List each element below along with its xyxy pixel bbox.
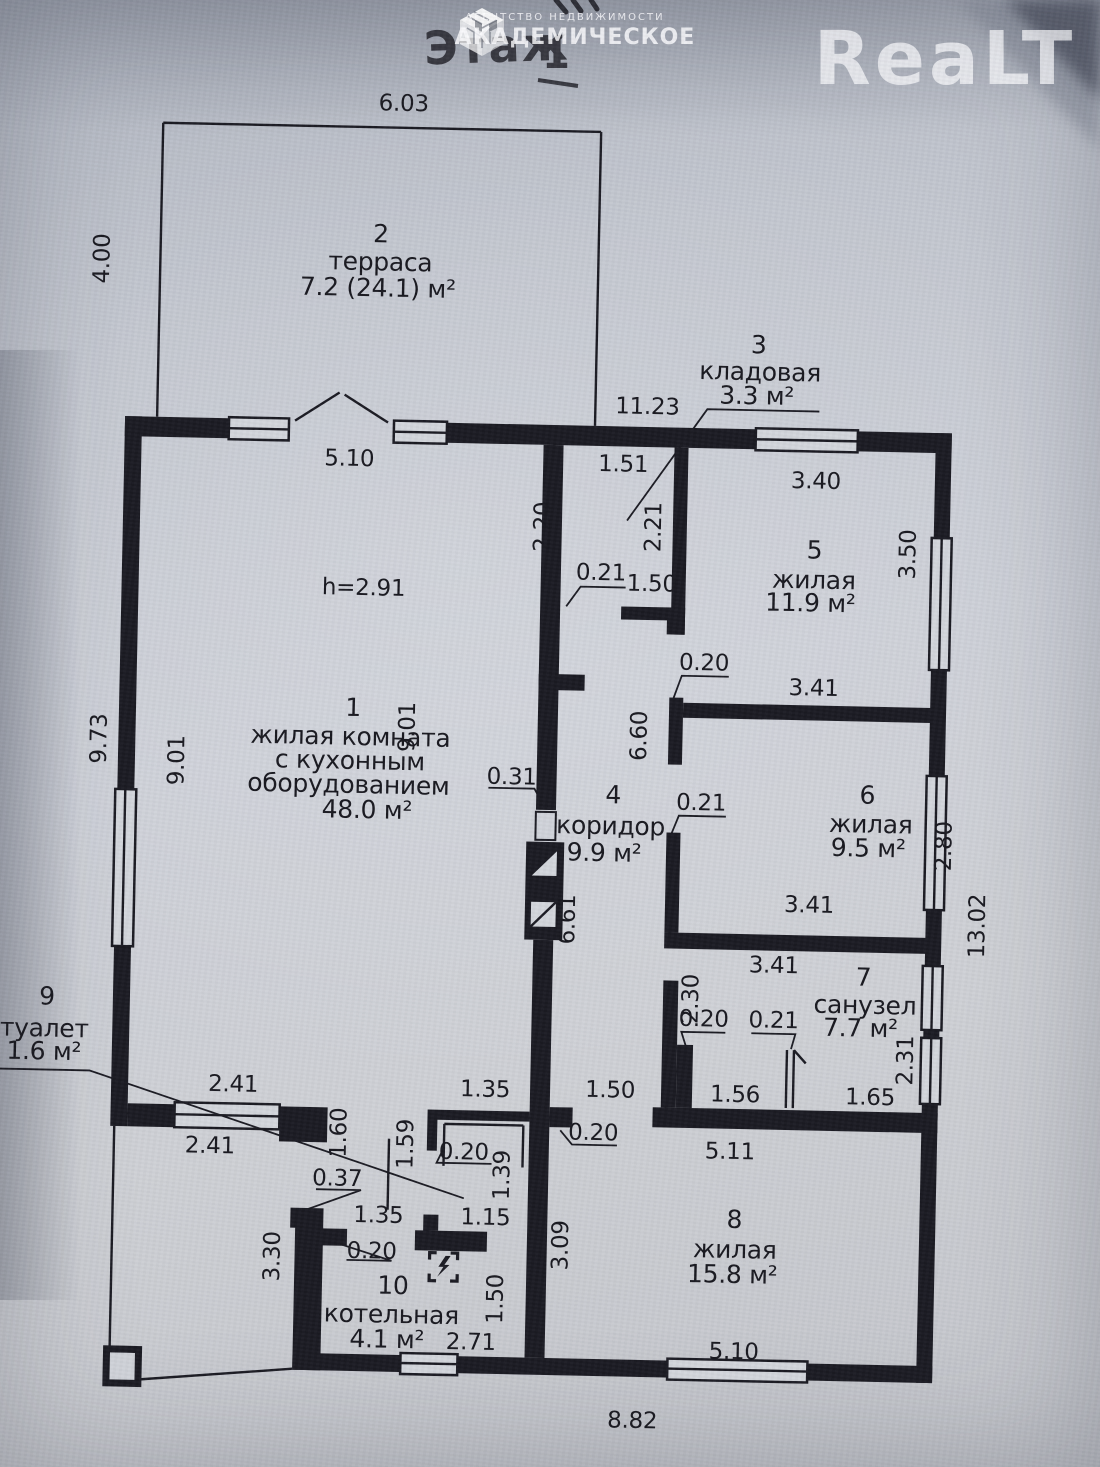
dim-wc-bottom: 2.41 [185, 1132, 236, 1159]
dim-boiler-height: 1.50 [482, 1274, 509, 1325]
agency-name: АКАДЕМИЧЕСКОЕ [455, 25, 696, 50]
dim-left-inner: 9.01 [163, 735, 190, 786]
entrance-door-leaves [295, 392, 389, 423]
dim-wc2-wall: 0.20 [438, 1139, 489, 1166]
window-toilet [174, 1102, 280, 1129]
room-label-pantry: 3 кладовая 3.3 м² [699, 329, 822, 412]
dim-pantry-width: 1.51 [598, 451, 649, 478]
room10-num: 10 [377, 1271, 409, 1301]
dim-pantry-height-left: 2.20 [529, 502, 556, 553]
porch-door-leaf [388, 1139, 389, 1210]
dim-terrace-depth: 4.00 [89, 233, 116, 284]
room8-area: 15.8 м² [687, 1259, 778, 1290]
window-right-bath-1 [921, 966, 942, 1030]
room-label-living8: 8 жилая 15.8 м² [687, 1204, 779, 1290]
room4-area: 9.9 м² [566, 837, 641, 868]
room9-num: 9 [39, 981, 55, 1010]
room10-area: 4.1 м² [349, 1324, 424, 1355]
room1-num: 1 [345, 693, 361, 722]
dim-terrace-width: 6.03 [378, 90, 429, 117]
room-label-bath: 7 санузел 7.7 м² [813, 962, 917, 1044]
room1-area: 48.0 м² [321, 794, 412, 825]
dim-wc-top: 2.41 [208, 1071, 259, 1098]
dim-wc2-left: 1.59 [392, 1119, 419, 1170]
dim-bath-niche1: 1.56 [710, 1081, 761, 1108]
dim-room6-width-bottom: 3.41 [784, 892, 835, 919]
dim-ceiling-height: h=2.91 [322, 574, 406, 602]
dim-bath-niche2: 1.65 [845, 1084, 896, 1111]
floor-plan-svg: Этаж 1 АГЕНТСТВО НЕДВИЖИМОСТИ АКАДЕМИЧЕС… [0, 0, 1100, 1467]
dim-boiler-wall: 0.20 [346, 1238, 397, 1265]
electric-panel-symbol [429, 1253, 458, 1282]
window-top-3 [756, 428, 858, 452]
dim-room8-height: 3.09 [547, 1220, 574, 1271]
room-label-living5: 5 жилая 11.9 м² [765, 534, 857, 618]
plan: 6.03 4.00 11.23 5.10 1.51 3.40 2.20 2.21… [0, 83, 1008, 1441]
dim-hall-upper: 6.60 [626, 711, 653, 762]
room7-num: 7 [855, 962, 871, 991]
dim-boiler-door2: 1.15 [460, 1204, 511, 1231]
dim-room6-width-top: 3.41 [788, 675, 839, 702]
room-label-boiler: 10 котельная 4.1 м² [323, 1269, 460, 1355]
room9-area: 1.6 м² [6, 1036, 81, 1067]
window-right-room5 [929, 538, 952, 670]
dim-porch-height: 3.30 [259, 1231, 286, 1282]
dim-house-width-top: 11.23 [615, 393, 680, 420]
porch-column [106, 1349, 139, 1384]
dim-room8-width-top: 5.11 [705, 1138, 756, 1165]
left-shade [0, 350, 80, 1300]
dim-hall-length: 6.61 [554, 894, 581, 945]
partition-niche [535, 812, 556, 840]
dim-room8-door: 1.50 [585, 1077, 636, 1104]
room-labels: 2 терраса 7.2 (24.1) м² 3 кладовая 3.3 м… [0, 212, 933, 1365]
dim-pantry-door: 1.50 [626, 571, 677, 598]
dim-bath-width: 3.41 [748, 952, 799, 979]
dim-bath-pier2: 0.21 [748, 1007, 799, 1034]
dim-boiler-pier: 0.37 [312, 1165, 363, 1192]
door-boiler-bottom [400, 1353, 457, 1375]
room3-area: 3.3 м² [719, 380, 794, 411]
agency-tagline: АГЕНТСТВО НЕДВИЖИМОСТИ [465, 12, 664, 23]
room-label-terrace: 2 терраса 7.2 (24.1) м² [300, 218, 458, 304]
room3-num: 3 [751, 330, 767, 359]
dim-bath-pier1: 0.20 [678, 1006, 729, 1033]
dim-room8-wall: 0.20 [568, 1119, 619, 1146]
room6-num: 6 [859, 780, 875, 809]
dim-boiler-door1: 1.35 [353, 1202, 404, 1229]
dim-partition-wall: 0.31 [486, 764, 537, 791]
dim-room5-height: 3.50 [895, 529, 922, 580]
room5-num: 5 [806, 535, 822, 564]
room5-area: 11.9 м² [765, 587, 856, 618]
dim-pantry-wall: 0.21 [576, 560, 627, 587]
dim-room1-width: 5.10 [324, 445, 375, 472]
dim-boiler-width: 2.71 [446, 1329, 497, 1356]
dim-room5-width: 3.40 [791, 468, 842, 495]
dim-room8-width-bottom: 5.10 [708, 1338, 759, 1365]
room8-num: 8 [726, 1205, 742, 1234]
dim-wc-width: 1.35 [460, 1076, 511, 1103]
realt-watermark: ReaLT [814, 16, 1077, 102]
room-label-living6: 6 жилая 9.5 м² [828, 780, 913, 864]
window-top-1 [229, 417, 289, 440]
room6-area: 9.5 м² [831, 833, 906, 864]
room4-num: 4 [605, 780, 621, 809]
dim-porch-opening: 1.60 [326, 1107, 353, 1158]
dim-room6-height: 2.80 [931, 821, 958, 872]
dim-house-width-bottom: 8.82 [607, 1407, 658, 1434]
bath-niche-lines [786, 1050, 806, 1108]
floor-plan-photo: Этаж 1 АГЕНТСТВО НЕДВИЖИМОСТИ АКАДЕМИЧЕС… [0, 0, 1100, 1467]
room-label-hall: 4 коридор 9.9 м² [555, 779, 666, 868]
dim-wall-56: 0.20 [679, 650, 730, 677]
room7-area: 7.7 м² [823, 1013, 898, 1044]
dim-pantry-height-right: 2.21 [640, 502, 667, 553]
dim-wc2-right: 1.39 [489, 1150, 516, 1201]
room2-area: 7.2 (24.1) м² [300, 272, 456, 304]
window-left [112, 789, 136, 946]
window-right-bath-2 [920, 1038, 941, 1104]
dim-left-outer: 9.73 [86, 713, 113, 764]
agency-watermark: АГЕНТСТВО НЕДВИЖИМОСТИ АКАДЕМИЧЕСКОЕ [455, 8, 696, 56]
dim-room6-wall: 0.21 [676, 790, 727, 817]
window-top-2 [394, 421, 447, 444]
dim-house-height-right: 13.02 [964, 894, 991, 959]
room2-num: 2 [373, 219, 389, 248]
